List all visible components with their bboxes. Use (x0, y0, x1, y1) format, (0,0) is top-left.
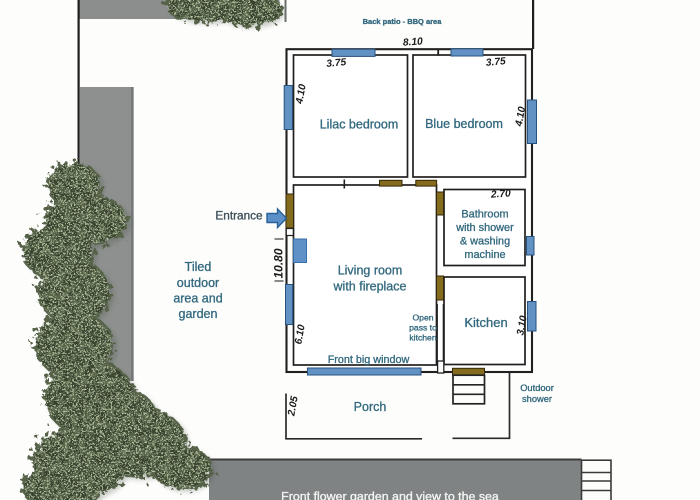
svg-text:Living room: Living room (338, 264, 403, 278)
svg-text:Blue bedroom: Blue bedroom (425, 117, 503, 131)
svg-text:pass to: pass to (409, 323, 437, 333)
svg-text:Kitchen: Kitchen (464, 315, 507, 330)
svg-text:with fireplace: with fireplace (333, 280, 407, 294)
svg-text:area and: area and (173, 292, 222, 306)
svg-text:3.75: 3.75 (326, 57, 347, 70)
svg-text:3.75: 3.75 (485, 56, 506, 69)
svg-text:Back patio - BBQ area: Back patio - BBQ area (363, 17, 443, 26)
svg-text:Front big window: Front big window (328, 354, 410, 366)
svg-text:machine: machine (464, 249, 505, 261)
svg-text:Open: Open (412, 313, 433, 323)
svg-text:Outdoor: Outdoor (520, 383, 554, 393)
svg-text:Lilac bedroom: Lilac bedroom (320, 118, 399, 132)
svg-text:kitchen: kitchen (409, 333, 436, 343)
svg-text:shower: shower (522, 394, 552, 404)
svg-text:Bathroom: Bathroom (461, 209, 508, 221)
svg-text:outdoor: outdoor (177, 276, 219, 290)
svg-text:Tiled: Tiled (185, 260, 212, 274)
svg-text:Porch: Porch (354, 400, 387, 414)
svg-text:2.70: 2.70 (490, 188, 512, 200)
svg-text:& washing: & washing (460, 236, 510, 248)
svg-text:with shower: with shower (455, 222, 514, 234)
svg-text:Entrance: Entrance (215, 209, 263, 223)
svg-text:8.10: 8.10 (403, 36, 424, 48)
svg-text:10.80: 10.80 (272, 248, 286, 278)
svg-text:garden: garden (179, 307, 218, 321)
svg-text:Front flower garden and view t: Front flower garden and view to the sea (281, 490, 499, 500)
